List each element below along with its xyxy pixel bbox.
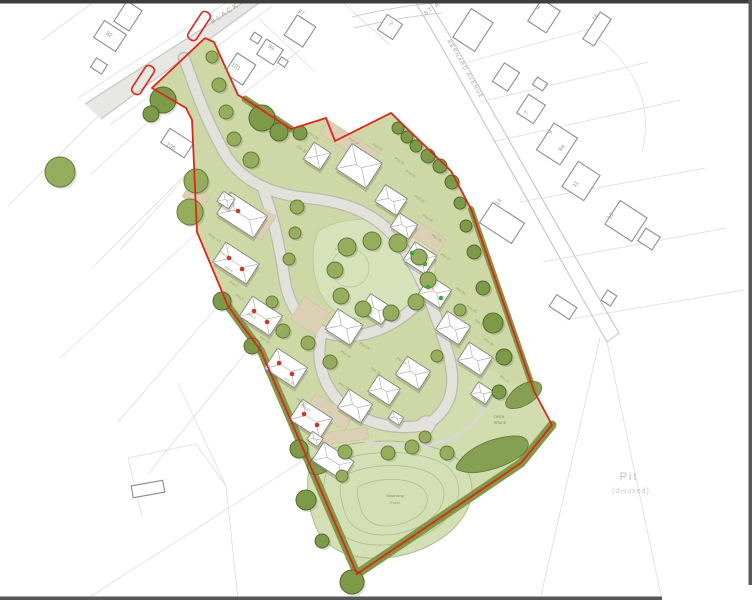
tree-symbol [405, 440, 419, 454]
existing-building [517, 94, 546, 123]
tree-symbol [333, 288, 349, 304]
existing-building [250, 32, 262, 44]
tree-symbol [266, 296, 278, 308]
annotation-label: Balancing [386, 493, 404, 498]
tree-symbol [483, 313, 503, 333]
red-unit-marker [252, 309, 257, 314]
parcel-line [42, 0, 96, 40]
tree-symbol [289, 227, 301, 239]
tree-symbol [431, 350, 443, 362]
tree-symbol [143, 106, 159, 122]
green-unit-marker [410, 251, 415, 256]
tree-symbol [383, 305, 399, 321]
existing-building [549, 295, 577, 320]
parcel-line [540, 338, 600, 600]
tree-symbol [467, 245, 481, 259]
parcel-line [196, 444, 226, 486]
green-unit-marker [426, 285, 431, 290]
tree-symbol [381, 446, 395, 460]
tree-symbol [45, 157, 75, 187]
existing-building [638, 228, 660, 250]
street-name-label: BERNARD AVENUE [445, 39, 484, 100]
annotation-label: Pit [620, 471, 639, 483]
tree-symbol [296, 490, 316, 510]
annotation-label: (disused) [612, 488, 650, 495]
tree-symbol [290, 200, 304, 214]
parcel-line [128, 444, 196, 458]
parcel-line [90, 120, 150, 175]
tree-symbol [454, 197, 466, 209]
parcel-line [148, 346, 251, 474]
house-number-label: 14 [495, 197, 504, 206]
tree-symbol [212, 78, 226, 92]
tree-symbol [419, 431, 431, 443]
existing-building [537, 123, 578, 165]
viewer-edge [0, 0, 752, 4]
tree-symbol [327, 262, 343, 278]
annotation-label: LAP [335, 246, 343, 251]
existing-road [607, 333, 619, 342]
green-unit-marker [439, 296, 444, 301]
tree-symbol [440, 446, 454, 460]
site-plan-page: BLACKST ABERNARD AVENUE92979910110523167… [0, 0, 752, 600]
tree-symbol [338, 445, 352, 459]
red-unit-marker [240, 267, 245, 272]
existing-building [480, 203, 525, 244]
tree-symbol [184, 169, 208, 193]
parcel-line [178, 383, 226, 486]
parcel-line [118, 301, 222, 422]
existing-building [284, 15, 316, 47]
red-unit-marker [265, 320, 270, 325]
existing-building [492, 63, 519, 91]
tree-symbol [340, 570, 364, 594]
viewer-edge [749, 0, 752, 585]
green-unit-marker [423, 262, 428, 267]
viewer-edge [0, 597, 662, 600]
parcel-line [60, 233, 197, 358]
existing-building [562, 161, 600, 200]
tree-symbol [363, 232, 381, 250]
red-unit-marker [290, 372, 295, 377]
tree-symbol [283, 253, 295, 265]
existing-building [528, 0, 561, 33]
tree-symbol [454, 304, 466, 316]
tree-symbol [389, 234, 407, 252]
parcel-line [88, 456, 310, 598]
existing-building [453, 9, 493, 52]
tree-symbol [301, 336, 315, 350]
tree-symbol [219, 105, 233, 119]
red-unit-marker [302, 412, 307, 417]
tree-symbol [355, 301, 371, 317]
tree-symbol [421, 149, 435, 163]
tree-symbol [227, 132, 241, 146]
tree-symbol [408, 294, 424, 310]
red-unit-marker [236, 209, 241, 214]
annotation-label: OPEN [494, 415, 505, 419]
existing-building [91, 58, 108, 74]
tree-symbol [177, 199, 203, 225]
red-unit-marker [277, 361, 282, 366]
tree-symbol [276, 324, 290, 338]
red-unit-marker [315, 423, 320, 428]
tree-symbol [336, 470, 348, 482]
existing-building [114, 1, 142, 31]
existing-building [131, 480, 165, 497]
existing-building [161, 128, 194, 158]
tree-symbol [315, 534, 329, 548]
site-plan-drawing: BLACKST ABERNARD AVENUE92979910110523167… [0, 0, 752, 600]
tree-symbol [476, 281, 490, 295]
annotation-label: Pond [390, 500, 399, 505]
existing-building [601, 290, 617, 306]
tree-symbol [206, 51, 218, 63]
parcel-line [520, 168, 706, 202]
tree-symbol [243, 152, 259, 168]
annotation-label: SPACE [494, 421, 507, 425]
existing-road [600, 40, 645, 152]
tree-symbol [460, 220, 472, 232]
